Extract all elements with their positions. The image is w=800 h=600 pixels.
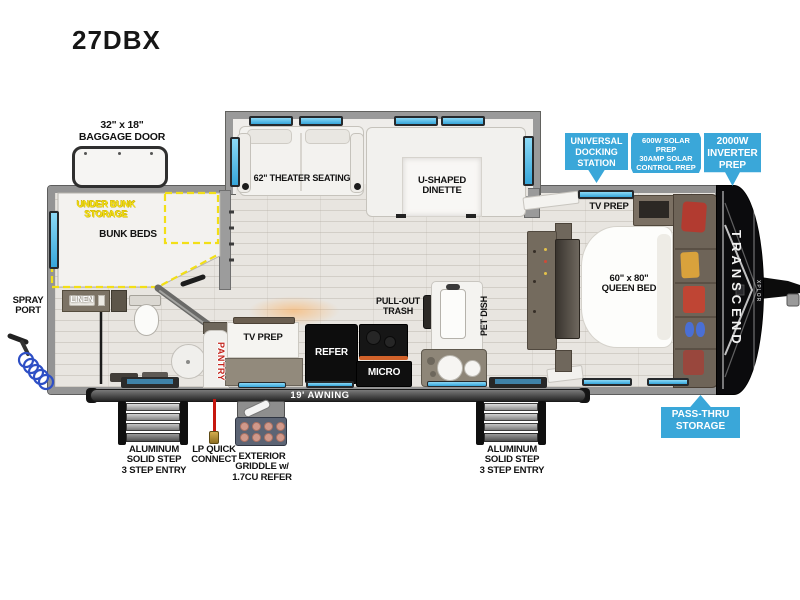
window-slide-left [230, 137, 240, 187]
window-bunk-left [49, 211, 59, 269]
dresser-light [544, 248, 547, 251]
queen-bed-label: 60" x 80" QUEEN BED [593, 274, 665, 295]
griddle-burner [252, 433, 261, 442]
wardrobe-shelf [675, 316, 716, 318]
shower-drain [186, 360, 190, 364]
dresser-light [544, 260, 547, 263]
island-round-sink-small [464, 360, 481, 377]
step-tread [126, 423, 180, 431]
step-rail [118, 401, 126, 445]
wardrobe-item-red2 [683, 286, 705, 313]
theater-headrest [247, 129, 292, 144]
bedroom-tv-panel [555, 239, 580, 339]
micro-label: MICRO [356, 367, 412, 378]
theater-cupholder [354, 183, 361, 190]
floorplan-title: 27DBX [72, 26, 192, 55]
spray-port-label: SPRAY PORT [2, 296, 54, 317]
window-theater-2 [299, 116, 343, 126]
step-rail [476, 401, 484, 445]
pet-dish-label: PET DISH [480, 292, 494, 340]
step-tread [484, 413, 538, 421]
step-tread [484, 403, 538, 411]
step-tread [126, 433, 180, 442]
brand-sub-name: XPLOR [750, 268, 760, 314]
pantry-label: PANTRY [207, 336, 225, 386]
linen-label: LINEN [63, 296, 101, 305]
step-tread [126, 403, 180, 411]
step-tread [484, 433, 538, 442]
theater-seating-label: 62" THEATER SEATING [246, 174, 358, 184]
lp-line [213, 399, 216, 435]
bathroom-cabinet [111, 290, 127, 312]
griddle-burner [240, 422, 249, 431]
dresser-knob [533, 250, 536, 253]
island-knob [430, 371, 436, 377]
wardrobe-item-red [681, 201, 707, 233]
step-tread [484, 423, 538, 431]
window-theater-1 [249, 116, 293, 126]
wardrobe-shoe [696, 322, 705, 337]
stove-handle [359, 356, 408, 360]
theater-cupholder [242, 183, 249, 190]
stove-burner [384, 336, 396, 348]
tv-prep-kitchen-label: TV PREP [231, 333, 295, 343]
step-rail [180, 401, 188, 445]
stove-burner [366, 330, 381, 345]
dinette-label: U-SHAPED DINETTE [404, 176, 480, 197]
baggage-door-label: 32" x 18" BAGGAGE DOOR [64, 120, 180, 143]
step-tread [126, 413, 180, 421]
window-dinette-2 [441, 116, 485, 126]
tv-prep-rail [233, 317, 295, 324]
bedroom-dresser [527, 231, 557, 350]
window-bedroom-bottom-2 [647, 378, 689, 386]
awning-label: 19' AWNING [270, 391, 370, 401]
window-bedroom-bottom-1 [582, 378, 632, 386]
dresser-knob [533, 280, 536, 283]
nightstand-bottom [555, 350, 572, 372]
wardrobe-item-plaid [683, 350, 704, 375]
window-bottom-kitchen [306, 381, 354, 388]
theater-headrest [305, 129, 350, 144]
griddle-burner [276, 422, 285, 431]
exterior-griddle-label: EXTERIOR GRIDDLE w/ 1.7CU REFER [222, 452, 302, 483]
solar-prep-badge: 600W SOLAR PREP 30AMP SOLAR CONTROL PREP [631, 133, 701, 173]
island-faucet [446, 284, 460, 290]
window-bedroom-top [578, 190, 634, 199]
step-rail [538, 401, 546, 445]
dinette-table-foot [396, 214, 406, 218]
entry-door-right-glass [495, 379, 541, 384]
toilet-bowl [134, 304, 159, 336]
bedroom-tv-screen [639, 201, 669, 218]
griddle-burner [276, 433, 285, 442]
step-entry-right-label: ALUMINUM SOLID STEP 3 STEP ENTRY [458, 445, 566, 476]
dinette-table-foot [466, 214, 476, 218]
wardrobe-shoe [685, 322, 694, 337]
island-knob [427, 357, 435, 365]
island-round-sink [437, 355, 463, 381]
griddle-burner [252, 422, 261, 431]
lp-connector [209, 431, 219, 444]
griddle-burner [240, 433, 249, 442]
griddle-burner [264, 433, 273, 442]
entry-door-left-glass [127, 379, 173, 384]
window-slide-right [523, 136, 534, 186]
wardrobe-shelf [675, 248, 716, 250]
floorplan-page: 27DBX 32" x 18" BAGGAGE DOOR [0, 0, 800, 600]
wardrobe-item-yellow [680, 252, 699, 279]
refer-label: REFER [305, 347, 358, 358]
bunk-handle [183, 277, 203, 284]
dresser-knob [533, 310, 536, 313]
island-sink [440, 289, 466, 339]
kitchen-floor-mat [238, 382, 286, 388]
window-dinette-1 [394, 116, 438, 126]
spray-hose-coil [19, 353, 53, 389]
tv-prep-bedroom-label: TV PREP [584, 202, 634, 212]
island-floor-mat [427, 381, 487, 387]
under-bunk-storage-label: UNDER BUNK STORAGE [66, 200, 146, 220]
pull-out-trash-label: PULL-OUT TRASH [374, 297, 422, 317]
bunk-beds-label: BUNK BEDS [86, 229, 170, 240]
dresser-light [544, 272, 547, 275]
griddle-burner [264, 422, 273, 431]
hitch-jack [787, 294, 799, 306]
wardrobe-shelf [675, 282, 716, 284]
